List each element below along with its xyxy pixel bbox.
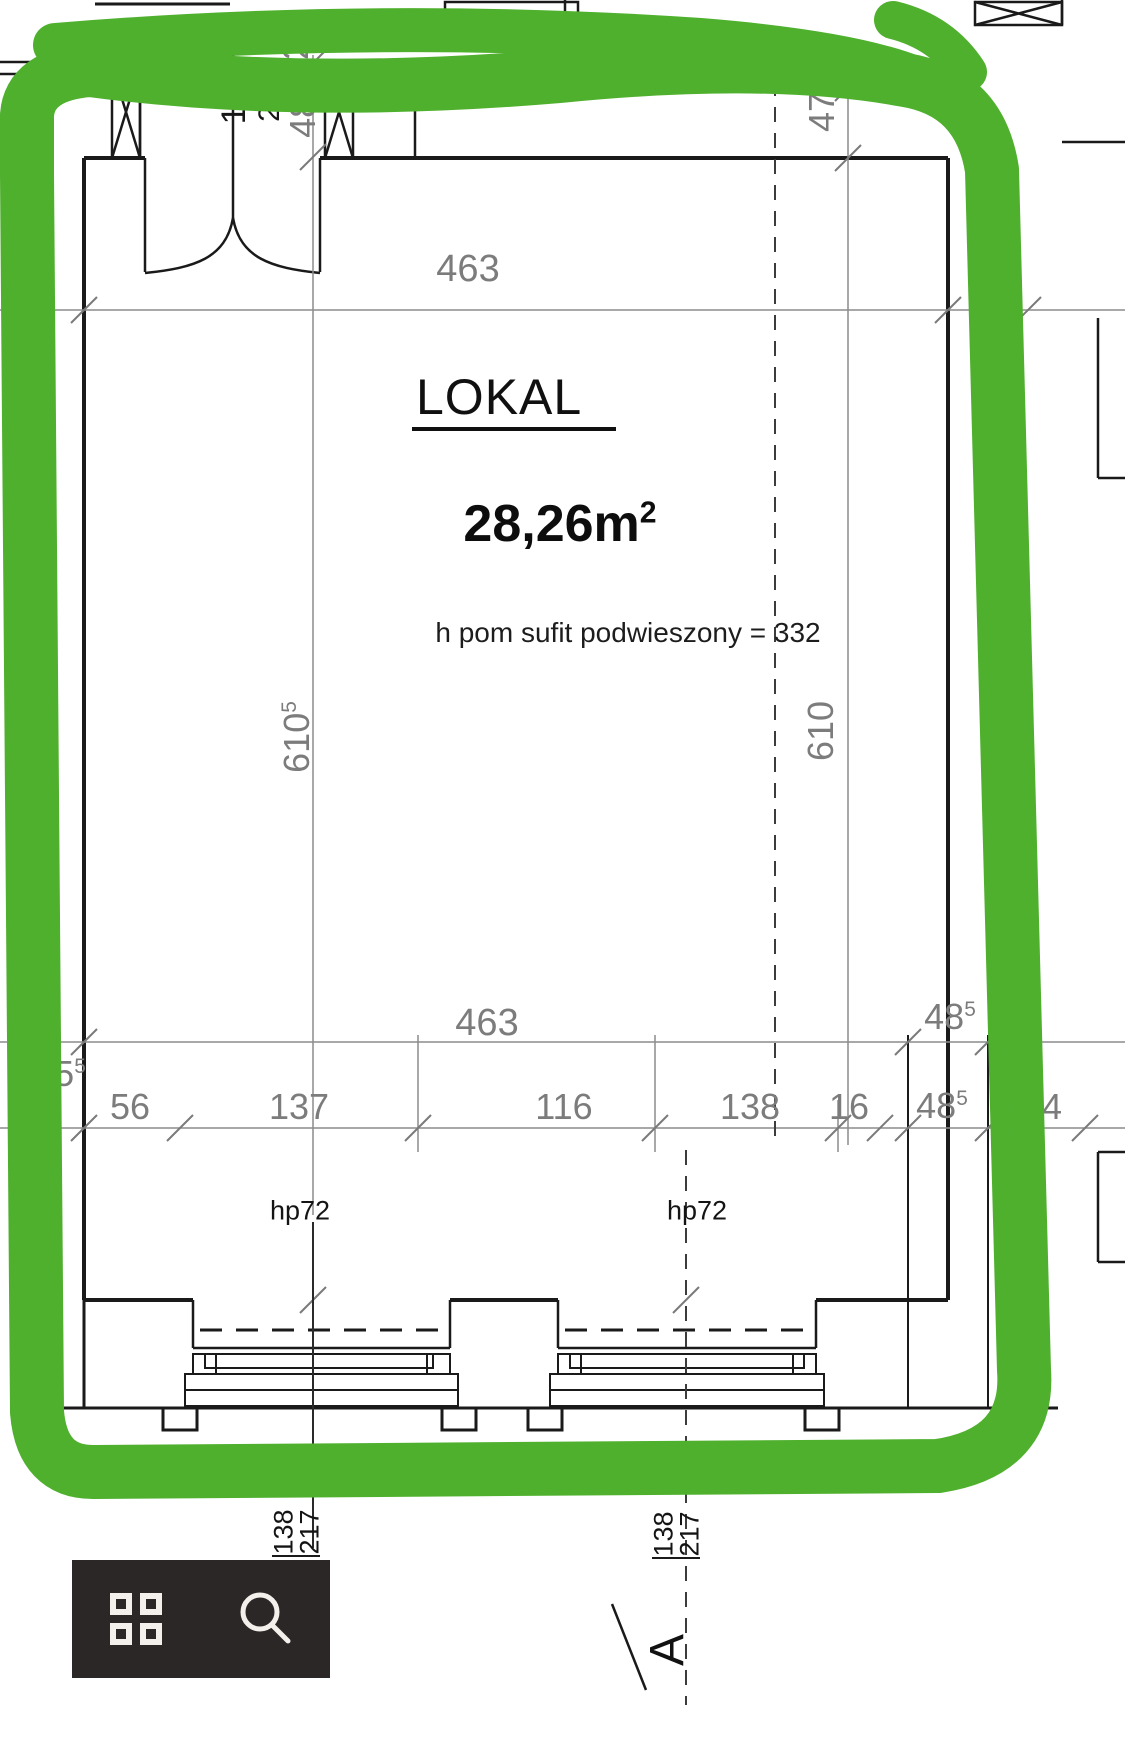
- green-marker-annotation: [0, 0, 1125, 1757]
- viewer-toolbar: [72, 1560, 330, 1678]
- search-icon: [234, 1588, 296, 1650]
- search-button[interactable]: [230, 1584, 300, 1654]
- grid-view-button[interactable]: [103, 1586, 169, 1652]
- floorplan-viewer: LOKAL 28,26m2 h pom sufit podwieszony = …: [0, 0, 1125, 1757]
- grid-icon: [107, 1590, 165, 1648]
